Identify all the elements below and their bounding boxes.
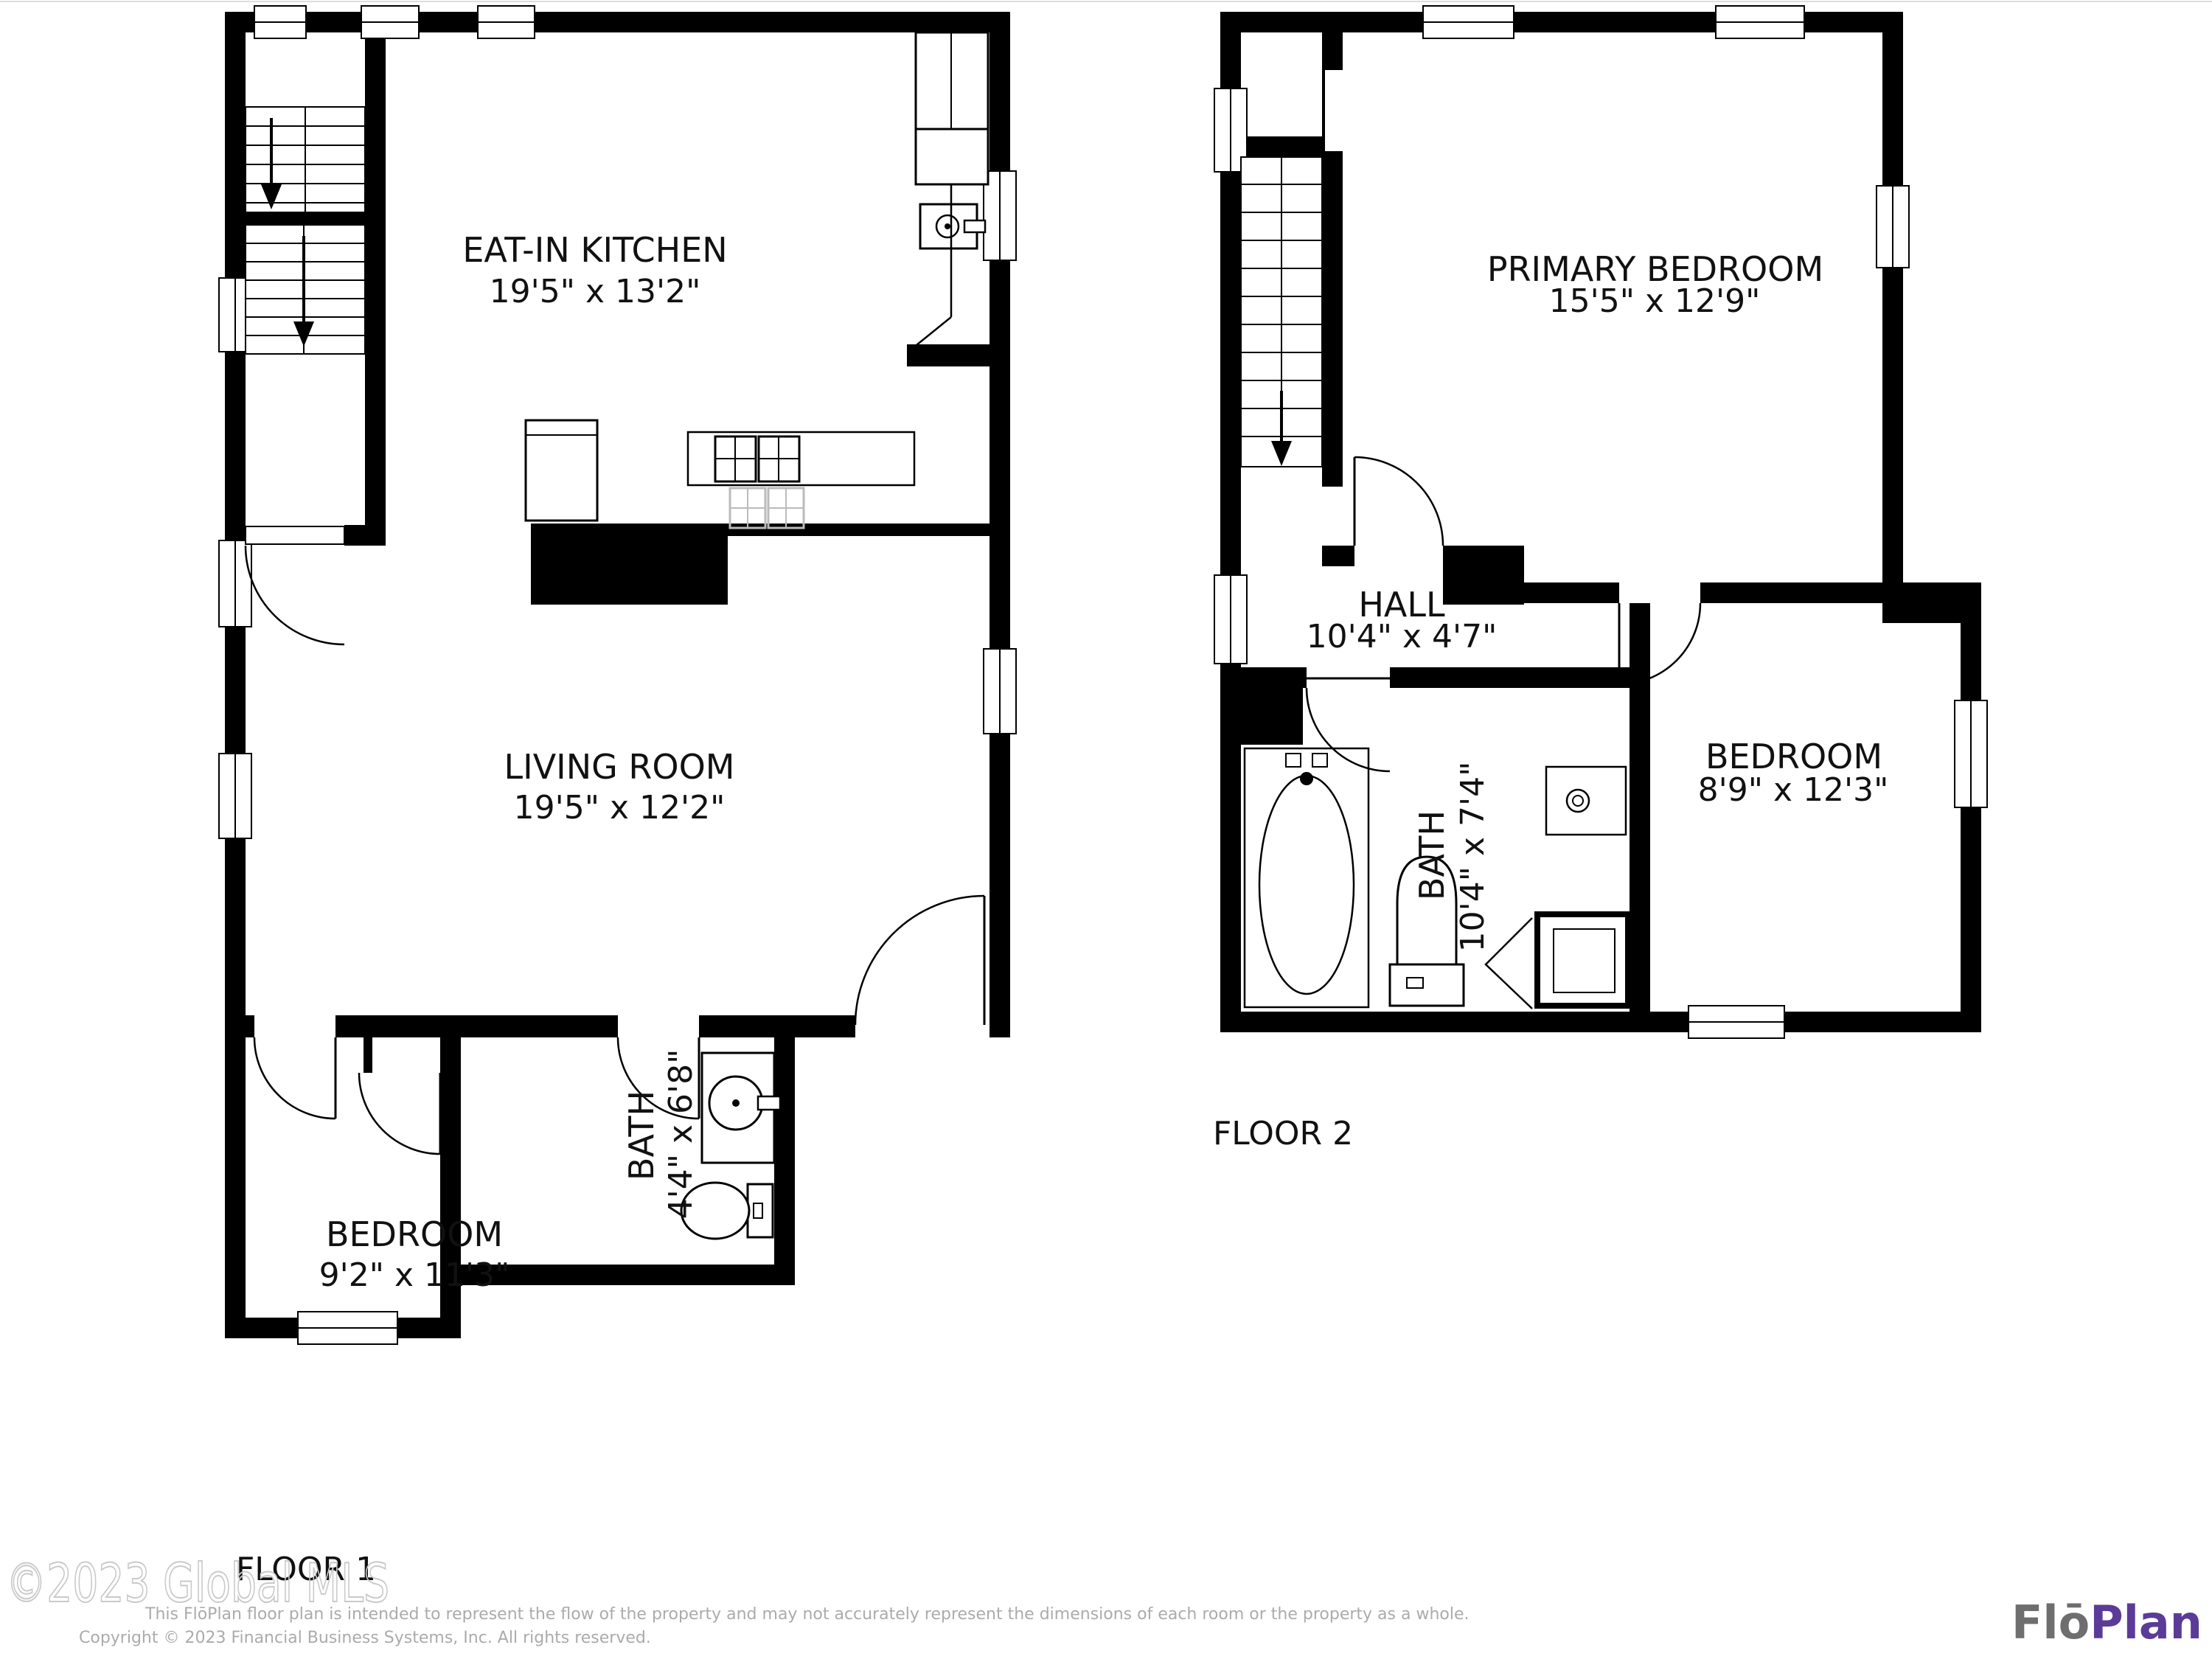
kitchen-label: EAT-IN KITCHEN xyxy=(462,230,727,270)
kitchen-dims: 19'5" x 13'2" xyxy=(490,273,701,310)
living-room-label: LIVING ROOM xyxy=(504,747,735,787)
window xyxy=(1688,1006,1784,1038)
disclaimer-text: This FlōPlan floor plan is intended to r… xyxy=(145,1605,1470,1624)
bedroom2-label: BEDROOM xyxy=(1705,737,1882,776)
window xyxy=(1423,6,1514,38)
floplan-logo: FlōPlan xyxy=(2011,1596,2202,1649)
primary-bedroom-dims: 15'5" x 12'9" xyxy=(1549,282,1761,320)
copyright-text: Copyright © 2023 Financial Business Syst… xyxy=(79,1629,651,1647)
bath2-dims: 10'4" x 7'4" xyxy=(1454,762,1492,953)
bedroom-closet-recess xyxy=(372,1037,440,1073)
window xyxy=(1214,575,1247,664)
floor2-label: FLOOR 2 xyxy=(1213,1115,1353,1152)
kitchen-sink-icon xyxy=(920,204,985,248)
bedroom2-dims: 8'9" x 12'3" xyxy=(1698,771,1889,809)
floorplan-canvas: EAT-IN KITCHEN 19'5" x 13'2" LIVING ROOM… xyxy=(0,0,2212,1659)
staircase-floor1 xyxy=(246,107,365,354)
bedroom1-dims: 9'2" x 11'3" xyxy=(319,1256,510,1294)
bedroom1-label: BEDROOM xyxy=(326,1214,503,1254)
window xyxy=(254,6,306,38)
window xyxy=(361,6,419,38)
logo-flo: Flō xyxy=(2011,1596,2090,1649)
stair-wall-niche xyxy=(1325,70,1343,151)
shower-icon xyxy=(1537,914,1628,1006)
window xyxy=(984,649,1016,734)
window xyxy=(478,6,535,38)
vanity-sink-icon xyxy=(702,1053,780,1163)
staircase-floor2 xyxy=(1241,157,1322,467)
bath1-label: BATH xyxy=(622,1091,661,1180)
window xyxy=(1955,700,1987,807)
living-room-dims: 19'5" x 12'2" xyxy=(514,789,726,827)
chimney-block xyxy=(1220,682,1303,745)
hall-dims: 10'4" x 4'7" xyxy=(1307,618,1498,655)
lower-cabinet xyxy=(916,129,988,184)
window xyxy=(298,1312,397,1344)
vanity-sink-icon xyxy=(1546,767,1626,835)
window xyxy=(1716,6,1804,38)
bath2-label: BATH xyxy=(1412,810,1452,900)
logo-plan: Plan xyxy=(2090,1596,2202,1649)
bath1-dims: 4'4" x 6'8" xyxy=(662,1049,700,1220)
window xyxy=(1877,186,1909,268)
window xyxy=(219,754,251,838)
bathtub-icon xyxy=(1245,748,1368,1007)
